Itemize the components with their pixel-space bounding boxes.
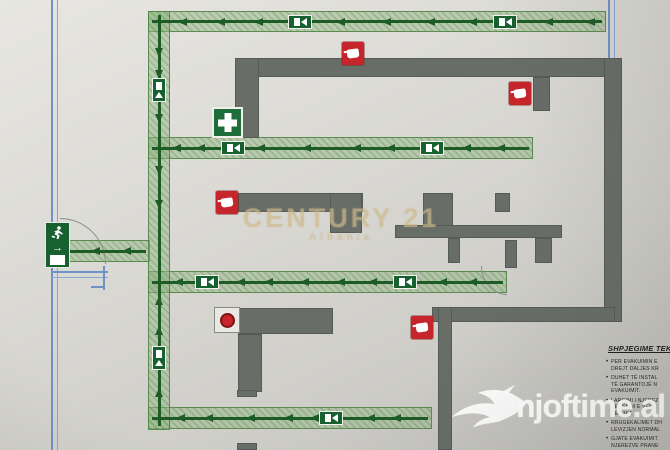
route-arrow-down-icon (155, 200, 163, 209)
icon-part (346, 48, 359, 59)
icon-part (234, 144, 240, 152)
wall-segment (448, 238, 460, 263)
route-arrow-left-icon (382, 18, 391, 26)
route-arrow-left-icon (204, 414, 213, 422)
icon-part (220, 313, 235, 328)
exit-direction-icon (493, 15, 517, 29)
legend-bullet: •PER EVAKUIMIN E DREJT DALJES KR (606, 359, 670, 372)
icon-part (399, 278, 405, 286)
door-jamb (91, 286, 105, 288)
icon-part (433, 144, 439, 152)
route-arrow-left-icon (122, 247, 131, 255)
door-line (52, 271, 108, 278)
route-arrow-left-icon (368, 278, 377, 286)
icon-part (513, 88, 526, 99)
icon-part (52, 236, 56, 239)
icon-part (415, 322, 428, 333)
icon-part (52, 226, 63, 239)
route-arrow-left-icon (336, 18, 345, 26)
icon-part (325, 414, 331, 422)
route-arrow-down-icon (155, 166, 163, 175)
first-aid-cross-icon (212, 107, 243, 138)
exit-direction-icon (319, 411, 343, 425)
exit-direction-icon (195, 275, 219, 289)
evacuation-plan-photo: CENTURY 21 Albania SHPJEGIME TEKN •PER E… (0, 0, 670, 450)
fire-extinguisher-icon (216, 191, 238, 214)
icon-part (227, 144, 233, 152)
route-arrow-left-icon (174, 278, 183, 286)
route-arrow-down-icon (155, 48, 163, 57)
century21-watermark-text: CENTURY 21 (236, 203, 446, 234)
icon-part (406, 278, 412, 286)
exit-direction-icon (221, 141, 245, 155)
wall-segment (535, 238, 552, 263)
route-arrow-left-icon (196, 144, 205, 152)
route-arrow-left-icon (366, 414, 375, 422)
route-arrow-left-icon (246, 414, 255, 422)
route-arrow-left-icon (544, 18, 553, 26)
icon-part: → (52, 244, 63, 252)
fire-extinguisher-icon (342, 42, 364, 65)
icon-part (301, 18, 307, 26)
route-arrow-left-icon (178, 18, 187, 26)
route-arrow-left-icon (392, 414, 401, 422)
icon-part (156, 350, 162, 358)
route-arrow-left-icon (586, 18, 595, 26)
icon-part (54, 230, 63, 239)
route-arrow-left-icon (264, 278, 273, 286)
icon-part (57, 226, 61, 230)
evac-route-centerline (152, 147, 529, 150)
route-arrow-left-icon (386, 144, 395, 152)
icon-part (155, 360, 163, 366)
route-arrow-left-icon (426, 18, 435, 26)
wall-segment (238, 334, 262, 392)
icon-part (506, 18, 512, 26)
exit-direction-icon (420, 141, 444, 155)
route-arrow-left-icon (256, 144, 265, 152)
route-arrow-left-icon (336, 278, 345, 286)
icon-part (426, 144, 432, 152)
route-arrow-left-icon (468, 278, 477, 286)
fire-extinguisher-icon (411, 316, 433, 339)
legend-bullet: •GJATE EVAKUIMIT NJEREZVE PRANE (606, 436, 670, 449)
bullet-dot: • (606, 359, 608, 372)
legend-bullet-text: GJATE EVAKUIMIT NJEREZVE PRANE (611, 436, 659, 449)
wall-segment (237, 443, 257, 450)
legend-bullet-text: PER EVAKUIMIN E DREJT DALJES KR (611, 359, 659, 372)
icon-part (50, 255, 65, 265)
icon-part (155, 92, 163, 98)
icon-part (220, 197, 233, 208)
wall-segment (235, 58, 605, 77)
icon-part (50, 225, 65, 240)
route-arrow-left-icon (438, 278, 447, 286)
fire-alarm-button-icon (214, 307, 240, 333)
njoftime-watermark-text: njoftime.al (516, 388, 665, 425)
legend-heading: SHPJEGIME TEKN (608, 344, 670, 353)
route-arrow-up-icon (155, 388, 163, 397)
fire-extinguisher-icon (509, 82, 531, 105)
wall-segment (238, 308, 333, 334)
route-arrow-left-icon (310, 414, 319, 422)
bullet-dot: • (606, 436, 608, 449)
exit-direction-icon (152, 346, 166, 370)
exit-direction-icon (393, 275, 417, 289)
icon-part (201, 278, 207, 286)
wall-segment (237, 390, 257, 397)
route-arrow-left-icon (236, 278, 245, 286)
njoftime-watermark: njoftime.al (446, 379, 665, 433)
wall-segment (495, 193, 510, 212)
route-arrow-up-icon (155, 326, 163, 335)
route-arrow-down-icon (155, 114, 163, 123)
route-arrow-left-icon (300, 278, 309, 286)
icon-part (294, 18, 300, 26)
route-arrow-left-icon (302, 144, 311, 152)
wall-segment (505, 240, 517, 268)
exterior-wall-line (608, 0, 615, 66)
running-man-exit-icon: → (45, 222, 70, 268)
route-arrow-left-icon (462, 144, 471, 152)
route-arrow-left-icon (216, 18, 225, 26)
route-arrow-left-icon (352, 144, 361, 152)
exit-direction-icon (152, 78, 166, 102)
wall-segment (432, 307, 615, 322)
route-arrow-left-icon (176, 414, 185, 422)
route-arrow-left-icon (468, 18, 477, 26)
exit-direction-icon (288, 15, 312, 29)
evac-route-centerline (70, 250, 146, 253)
route-arrow-left-icon (284, 414, 293, 422)
route-arrow-left-icon (91, 247, 100, 255)
icon-part (208, 278, 214, 286)
route-arrow-left-icon (496, 144, 505, 152)
route-arrow-left-icon (172, 144, 181, 152)
icon-part (332, 414, 338, 422)
route-arrow-left-icon (254, 18, 263, 26)
wall-segment (604, 58, 622, 322)
wall-segment (533, 77, 550, 111)
route-arrow-up-icon (155, 296, 163, 305)
icon-part (156, 82, 162, 90)
century21-watermark: CENTURY 21 Albania (236, 203, 446, 243)
icon-part (499, 18, 505, 26)
